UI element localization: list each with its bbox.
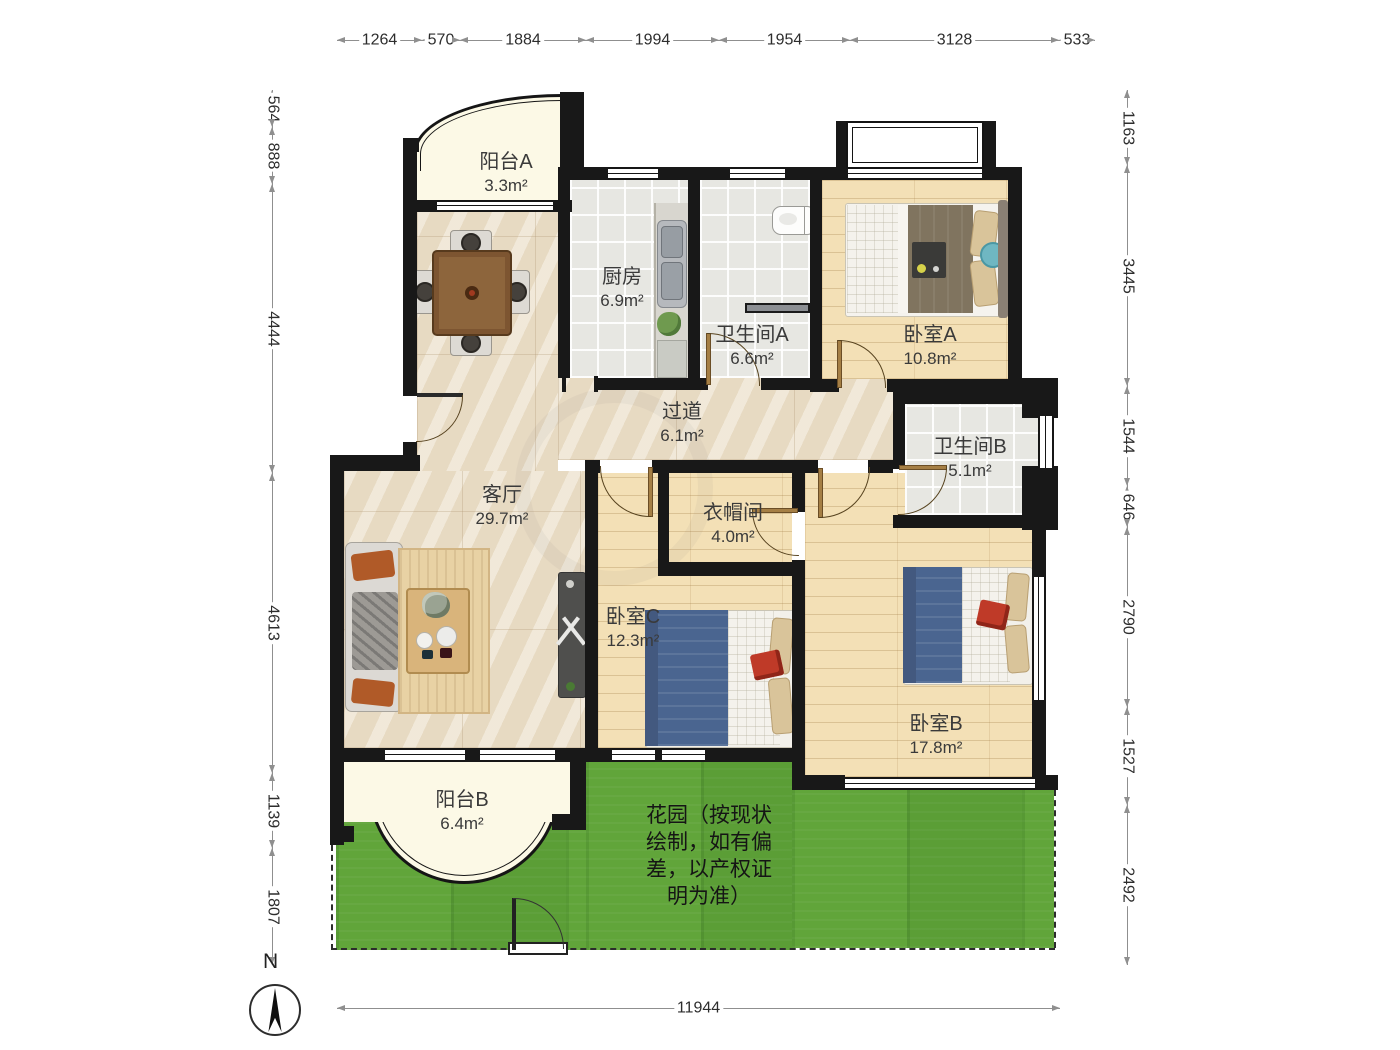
bed-a-sheet-band <box>898 205 908 313</box>
window <box>1038 416 1054 468</box>
dimension-value: 1544 <box>1119 415 1137 457</box>
wall-segment <box>558 180 570 378</box>
room-area: 10.8m² <box>903 348 956 370</box>
wall-segment <box>1032 530 1046 577</box>
dimension-value: 646 <box>1119 490 1137 523</box>
window <box>730 167 785 180</box>
dimension: 4613 <box>272 473 273 773</box>
room-name: 客厅 <box>476 483 529 508</box>
room-area: 12.3m² <box>606 630 660 652</box>
dimension-value: 888 <box>264 139 282 172</box>
dimension-value: 564 <box>264 92 282 125</box>
dimension: 564 <box>272 90 273 127</box>
coffee-cup <box>436 626 457 647</box>
bench-plant <box>566 682 575 691</box>
dimension: 646 <box>1127 486 1128 527</box>
window <box>437 200 553 212</box>
bay-window-inner <box>852 127 978 163</box>
bed-b-blanket <box>916 567 962 683</box>
room-area: 5.1m² <box>933 460 1006 482</box>
window <box>480 748 555 762</box>
bed-a-tray-item <box>933 266 939 272</box>
wall-segment <box>597 378 700 390</box>
dimension-value: 3445 <box>1119 255 1137 297</box>
coffee-table-plant <box>422 592 450 618</box>
bed-a-sheet <box>847 205 899 313</box>
room-label-bath-b: 卫生间B 5.1m² <box>933 435 1006 482</box>
dimension: 11944 <box>337 1008 1060 1009</box>
room-label-kitchen: 厨房 6.9m² <box>600 265 643 312</box>
dining-table <box>432 250 512 336</box>
dimension: 1139 <box>272 773 273 848</box>
coffee-cup <box>416 632 433 649</box>
bed-b-footboard <box>903 567 916 683</box>
wall-segment <box>887 379 1022 392</box>
dimension: 4444 <box>272 184 273 473</box>
dimension: 570 <box>422 40 460 41</box>
north-arrow-icon <box>264 988 286 1032</box>
bath-a-vanity <box>745 303 810 313</box>
wall-segment <box>655 748 662 762</box>
dimension-value: 1994 <box>632 32 674 50</box>
bed-a-tray <box>912 242 946 278</box>
wall-segment <box>705 748 805 762</box>
door-frame-tick <box>594 376 598 392</box>
wall-segment <box>797 775 845 790</box>
wall-segment <box>552 814 586 830</box>
room-label-bed-c: 卧室C 12.3m² <box>606 605 660 652</box>
dimension: 3128 <box>850 40 1059 41</box>
bed-a-tray-item <box>917 264 926 273</box>
sink-basin <box>661 226 683 258</box>
room-name: 卧室B <box>909 712 962 737</box>
wall-segment <box>330 826 354 842</box>
window <box>608 167 658 180</box>
door-frame-tick <box>562 376 566 392</box>
wall-segment <box>560 92 584 170</box>
room-area: 29.7m² <box>476 508 529 530</box>
room-label-bed-b: 卧室B 17.8m² <box>909 712 962 759</box>
dimension-value: 1527 <box>1119 735 1137 777</box>
window <box>612 748 655 762</box>
sofa-throw <box>352 592 398 670</box>
window <box>1032 577 1046 700</box>
dimension: 2790 <box>1127 527 1128 707</box>
room-area: 4.0m² <box>703 526 763 548</box>
dimension-value: 1954 <box>764 32 806 50</box>
bed-b-pillow <box>1004 624 1030 674</box>
dimension-value: 1807 <box>264 886 282 928</box>
room-name: 卫生间A <box>715 323 788 348</box>
bed-a-headboard <box>998 200 1008 318</box>
room-name: 过道 <box>660 400 703 425</box>
dimension: 533 <box>1059 40 1095 41</box>
room-area: 6.6m² <box>715 348 788 370</box>
garden-boundary <box>331 845 333 950</box>
floor-plan-page: 阳台A 3.3m² 厨房 6.9m² 卫生间A 6.6m² 卧室A 10.8m²… <box>0 0 1400 1050</box>
dimension: 1527 <box>1127 707 1128 805</box>
dimension: 2492 <box>1127 805 1128 965</box>
wall-segment <box>403 200 437 212</box>
dimension-value: 570 <box>425 32 458 50</box>
bench-item <box>566 580 574 588</box>
room-label-balcony-a: 阳台A 3.3m² <box>479 150 532 197</box>
dimension-value: 1163 <box>1119 107 1137 147</box>
bed-c-blanket <box>658 610 728 746</box>
dimension-value: 11944 <box>674 1000 723 1018</box>
wall-segment <box>810 379 839 392</box>
room-area: 3.3m² <box>479 175 532 197</box>
room-label-bed-a: 卧室A 10.8m² <box>903 323 956 370</box>
room-area: 17.8m² <box>909 737 962 759</box>
dimension: 3445 <box>1127 165 1128 386</box>
wall-segment <box>1008 167 1022 392</box>
wall-segment <box>658 562 792 576</box>
dimension-value: 2492 <box>1119 864 1137 906</box>
dimension: 1994 <box>586 40 719 41</box>
toilet-tank-line <box>804 207 805 234</box>
wall-segment <box>1022 378 1058 418</box>
room-name: 阳台B <box>435 788 488 813</box>
kitchen-cabinet <box>657 340 687 378</box>
wall-segment <box>330 455 344 845</box>
dimension: 1163 <box>1127 90 1128 165</box>
dimension-value: 4444 <box>264 308 282 350</box>
room-label-living: 客厅 29.7m² <box>476 483 529 530</box>
wall-segment <box>688 167 700 378</box>
room-label-bath-a: 卫生间A 6.6m² <box>715 323 788 370</box>
wall-segment <box>558 167 610 180</box>
garden-boundary <box>1054 790 1056 948</box>
window-slider <box>845 777 1035 790</box>
compass <box>249 984 301 1036</box>
wall-segment <box>1022 466 1058 530</box>
room-name: 阳台A <box>479 150 532 175</box>
room-name: 卧室A <box>903 323 956 348</box>
dimension-value: 2790 <box>1119 596 1137 638</box>
dimension: 1544 <box>1127 386 1128 486</box>
wall-segment <box>465 748 480 762</box>
room-name: 厨房 <box>600 265 643 290</box>
dimension-value: 1884 <box>502 32 544 50</box>
garden-note: 花园（按现状 绘制，如有偏 差，以产权证 明为准） <box>646 802 772 910</box>
dimension-value: 4613 <box>264 602 282 644</box>
wall-segment <box>868 460 893 473</box>
dimension: 888 <box>272 127 273 184</box>
table-bottle <box>422 650 433 659</box>
toilet-bowl <box>779 213 797 225</box>
wall-segment <box>585 460 598 755</box>
dimension-value: 3128 <box>934 32 976 50</box>
dimension: 1954 <box>719 40 850 41</box>
room-name: 卧室C <box>606 605 660 630</box>
table-bottle <box>440 648 452 658</box>
dimension: 1884 <box>460 40 586 41</box>
sofa-pillow <box>351 678 395 707</box>
wall-segment <box>984 121 996 169</box>
wall-segment <box>1035 775 1058 790</box>
window <box>662 748 705 762</box>
bay-window <box>846 121 984 169</box>
compass-label: N <box>263 950 278 974</box>
room-name: 卫生间B <box>933 435 1006 460</box>
dimension-value: 1139 <box>264 790 282 830</box>
sink-basin <box>661 262 683 300</box>
dimension: 1264 <box>337 40 422 41</box>
room-name: 衣帽间 <box>703 501 763 526</box>
room-area: 6.1m² <box>660 425 703 447</box>
room-area: 6.9m² <box>600 290 643 312</box>
sofa-pillow <box>351 550 396 582</box>
wall-segment <box>330 748 385 762</box>
garden-boundary <box>331 948 1055 950</box>
wall-segment <box>585 748 612 762</box>
dimension-value: 533 <box>1061 32 1094 50</box>
dimension-value: 1264 <box>359 32 401 50</box>
window <box>385 748 465 762</box>
room-label-closet: 衣帽间 4.0m² <box>703 501 763 548</box>
wall-segment <box>403 212 417 396</box>
room-label-balcony-b: 阳台B 6.4m² <box>435 788 488 835</box>
wall-segment <box>658 473 669 573</box>
room-area: 6.4m² <box>435 813 488 835</box>
wall-segment <box>810 167 822 379</box>
wall-segment <box>792 460 805 512</box>
dining-centerpiece-dot <box>469 290 475 296</box>
room-label-hallway: 过道 6.1m² <box>660 400 703 447</box>
garden-lawn <box>792 788 1054 948</box>
dimension: 1807 <box>272 848 273 965</box>
